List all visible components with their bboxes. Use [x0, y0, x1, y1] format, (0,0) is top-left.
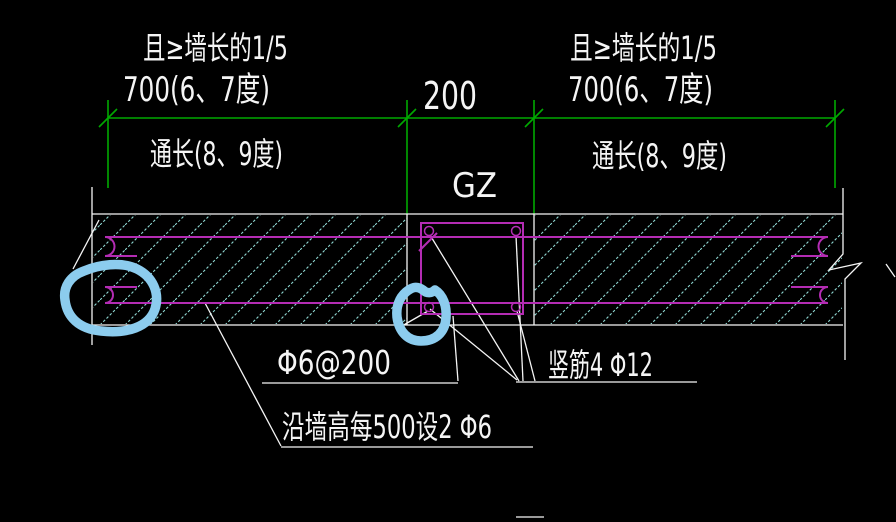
dim-value-middle: 200 [423, 74, 477, 118]
column-label: GZ [452, 166, 497, 206]
cad-canvas: 且≥墙长的1/5 700(6、7度) 通长(8、9度) 200 且≥墙长的1/5… [0, 0, 896, 522]
wall-hatch-right [534, 215, 842, 324]
stirrup-spec-label: Φ6@200 [277, 343, 391, 382]
vertical-bars-label: 竖筋4 Φ12 [548, 346, 653, 384]
dim-value-right: 700(6、7度) [568, 70, 713, 110]
dim-note-right: 且≥墙长的1/5 [570, 29, 717, 67]
span-label-left: 通长(8、9度) [150, 135, 283, 173]
span-label-right: 通长(8、9度) [592, 137, 727, 175]
wall-bars-label: 沿墙高每500设2 Φ6 [282, 408, 492, 446]
dim-note-left: 且≥墙长的1/5 [143, 29, 288, 67]
dim-value-left: 700(6、7度) [123, 70, 270, 110]
structural-detail-drawing: 且≥墙长的1/5 700(6、7度) 通长(8、9度) 200 且≥墙长的1/5… [0, 0, 896, 522]
